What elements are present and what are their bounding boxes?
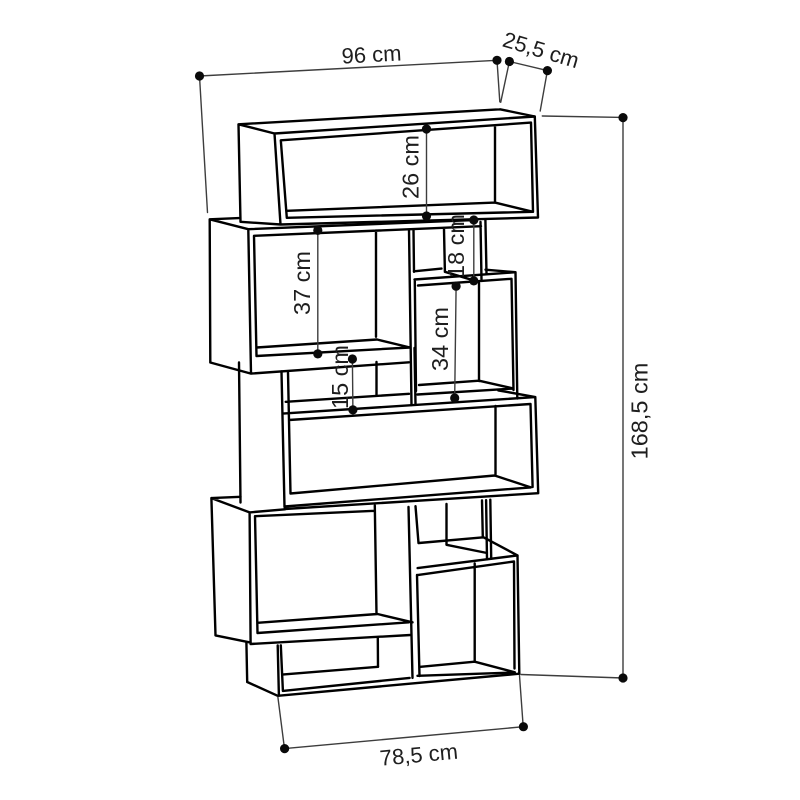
svg-text:37 cm: 37 cm: [289, 251, 315, 315]
svg-text:26 cm: 26 cm: [398, 135, 424, 199]
svg-text:168,5 cm: 168,5 cm: [627, 363, 653, 460]
svg-text:18 cm: 18 cm: [443, 214, 469, 278]
svg-text:15 cm: 15 cm: [327, 345, 353, 409]
svg-text:34 cm: 34 cm: [427, 307, 453, 371]
svg-text:96 cm: 96 cm: [341, 40, 402, 68]
